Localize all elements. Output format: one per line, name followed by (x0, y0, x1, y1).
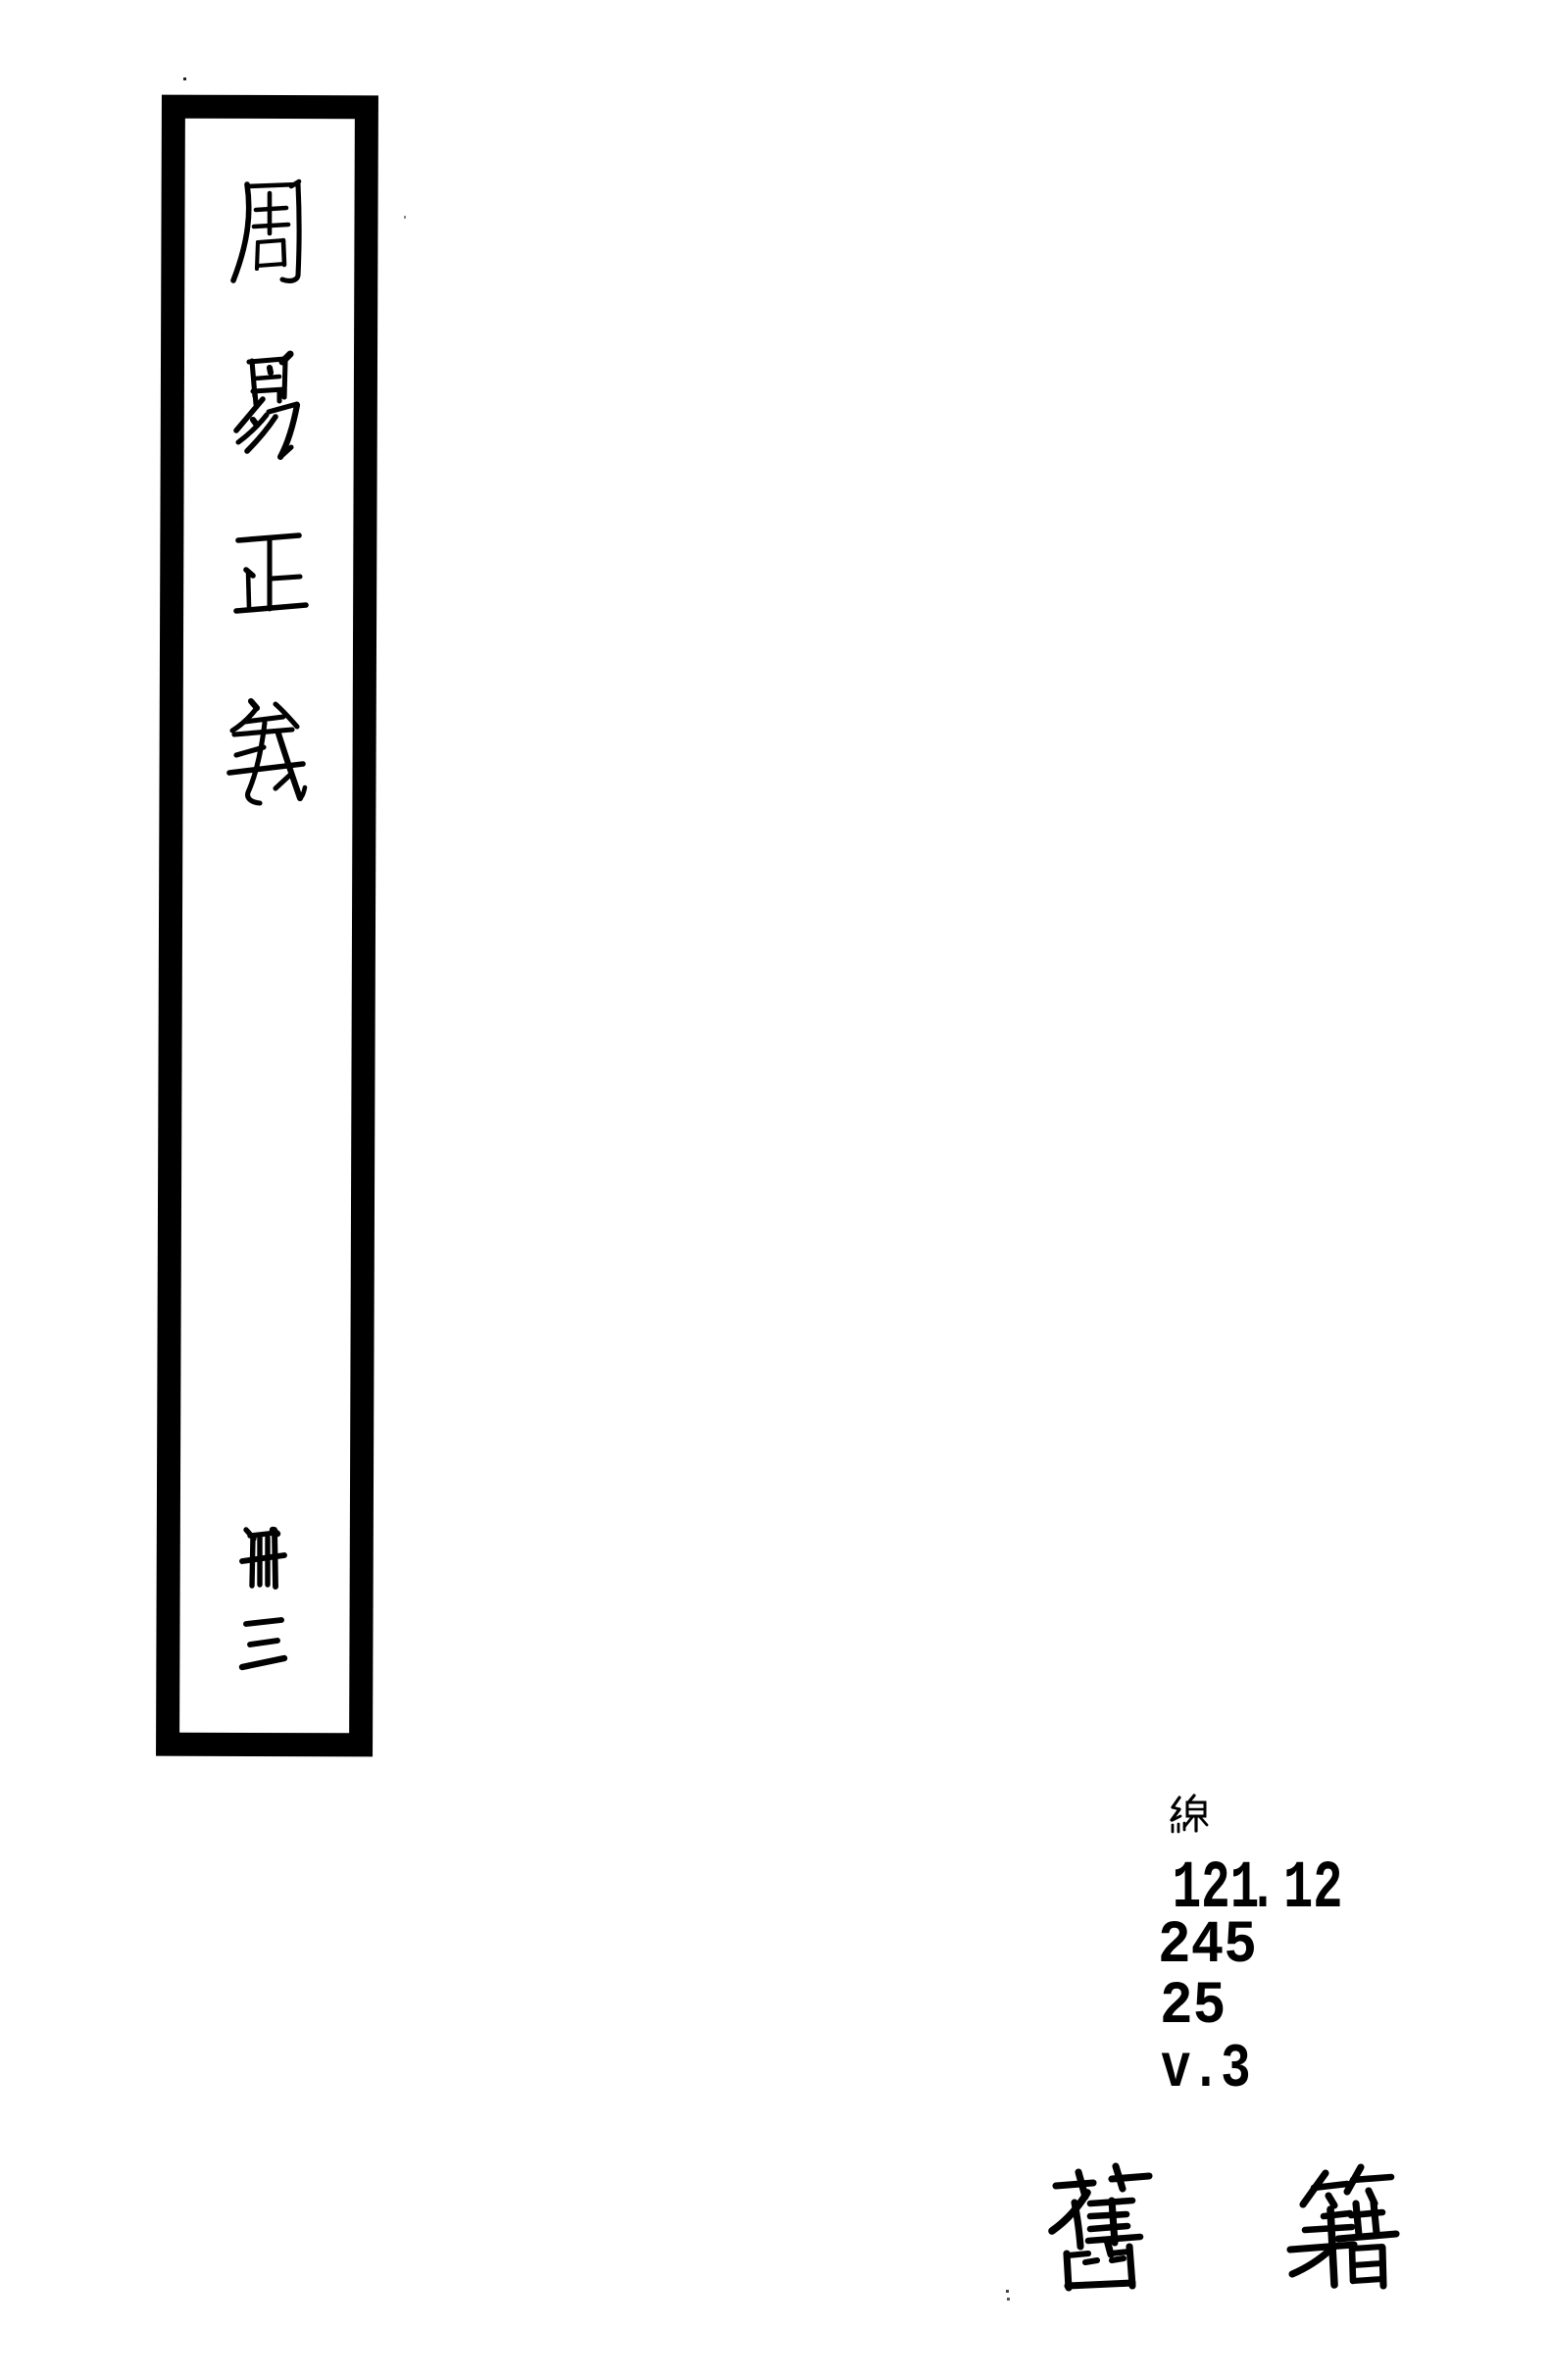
svg-text:12: 12 (1283, 1851, 1342, 1928)
svg-text:v.3: v.3 (1161, 2035, 1251, 2104)
svg-text:245: 245 (1158, 1911, 1257, 1980)
svg-text:25: 25 (1160, 1972, 1226, 2041)
